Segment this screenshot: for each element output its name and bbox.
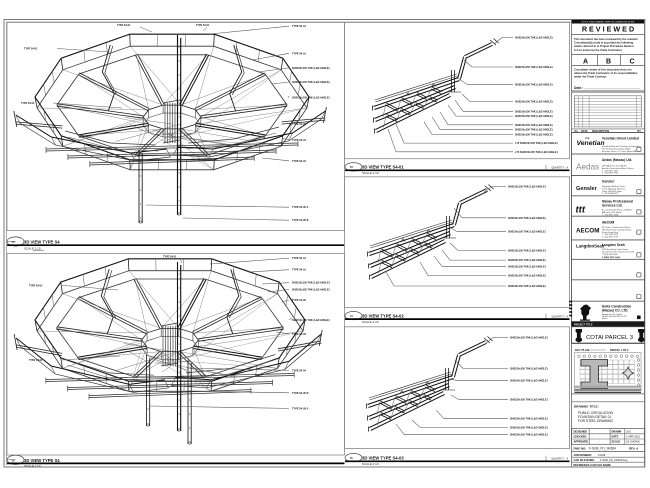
svg-text:Aedas (Macau) Ltd.: Aedas (Macau) Ltd. [602, 158, 632, 162]
svg-text:DO NOT SCALE DRAWING. VERIFY A: DO NOT SCALE DRAWING. VERIFY ALL DIMENSI… [581, 21, 635, 24]
svg-text:R E V I E W E D: R E V I E W E D [582, 25, 634, 34]
svg-text:QUANTITY : 4: QUANTITY : 4 [551, 314, 568, 318]
svg-text:04: 04 [350, 315, 353, 318]
svg-text:AECOM: AECOM [602, 221, 615, 225]
svg-text:SHS150x150 THK (L&D ANGLE): SHS150x150 THK (L&D ANGLE) [515, 83, 553, 86]
svg-text:Executive Offices - L2, Taipa,: Executive Offices - L2, Taipa, Macao SAR [602, 150, 638, 153]
svg-text:5.4 for action by the Trade Co: 5.4 for action by the Trade Contractor. [574, 48, 623, 52]
svg-text:JOB NUMBER:: JOB NUMBER: [574, 453, 592, 457]
svg-text:F + 852 3922 9797: F + 852 3922 9797 [602, 237, 618, 239]
svg-text:L75 SHS150x150 THK (L&D ANGLE): L75 SHS150x150 THK (L&D ANGLE) [515, 142, 558, 145]
svg-text:TYPE S4-01: TYPE S4-01 [117, 24, 131, 27]
svg-text:T + 81.3.6406.8771: T + 81.3.6406.8771 [602, 193, 618, 195]
svg-text:AECOM: AECOM [576, 228, 599, 235]
svg-text:DRAWING TITLE:: DRAWING TITLE: [574, 405, 599, 409]
svg-text:LKO: LKO [626, 430, 631, 433]
svg-text:SHS150x150 THK (L&D ANGLE): SHS150x150 THK (L&D ANGLE) [508, 275, 546, 278]
svg-text:F-SUB_FD_SK604.dwg: F-SUB_FD_SK604.dwg [600, 458, 628, 462]
svg-text:DESIGNED: DESIGNED [574, 429, 588, 433]
svg-text:CHECKED: CHECKED [574, 435, 587, 439]
svg-text:TYPE S4-04: TYPE S4-04 [292, 160, 307, 163]
svg-text:SHS150x150 THK (L&D ANGLE): SHS150x150 THK (L&D ANGLE) [292, 319, 330, 322]
svg-text:SHS150x150 THK (L&D ANGLE): SHS150x150 THK (L&D ANGLE) [508, 285, 546, 288]
svg-text:TYPE S4-01: TYPE S4-01 [292, 52, 307, 55]
svg-text:TYPE S4-02: TYPE S4-02 [292, 299, 307, 302]
svg-text:SHS150x150 THK (L&D ANGLE): SHS150x150 THK (L&D ANGLE) [292, 289, 330, 292]
svg-text:-: - [599, 441, 600, 444]
svg-text:SCALE 1:10: SCALE 1:10 [362, 462, 379, 466]
svg-text:SHS150x150 THK (L&D ANGLE): SHS150x150 THK (L&D ANGLE) [515, 66, 553, 69]
svg-text:DWG NO:: DWG NO: [574, 447, 587, 451]
svg-text:ttt: ttt [576, 205, 586, 216]
svg-text:Langdon Seah: Langdon Seah [602, 243, 625, 247]
svg-text:3D VIEW TYPE S4: 3D VIEW TYPE S4 [24, 240, 60, 245]
svg-text:Aedas: Aedas [576, 163, 599, 172]
svg-text:SHS150x150 THK (L&D ANGLE): SHS150x150 THK (L&D ANGLE) [292, 282, 330, 285]
svg-text:1-APR-2015: 1-APR-2015 [626, 436, 640, 439]
svg-text:SHS150x150 THK (L&D ANGLE): SHS150x150 THK (L&D ANGLE) [508, 217, 546, 220]
svg-text:SHS150x150 THK (L&D ANGLE): SHS150x150 THK (L&D ANGLE) [515, 128, 553, 131]
svg-text:TYPE S4-05 B: TYPE S4-05 B [292, 219, 309, 222]
svg-text:Venetian Orient Limited: Venetian Orient Limited [602, 137, 639, 141]
svg-text:SHS150x150 THK (L&D ANGLE): SHS150x150 THK (L&D ANGLE) [510, 426, 548, 429]
svg-text:L75 SHS150x150 THK (L&D ANGLE): L75 SHS150x150 THK (L&D ANGLE) [515, 151, 558, 154]
svg-text:DATE: DATE [612, 435, 619, 439]
svg-text:QUANTITY : 4: QUANTITY : 4 [551, 166, 568, 170]
svg-text:TYPE S4-02: TYPE S4-02 [29, 284, 43, 287]
svg-text:T (852) 2830 3500: T (852) 2830 3500 [602, 254, 618, 256]
svg-text:LangdonSeah: LangdonSeah [576, 244, 605, 249]
svg-text:TYPE S4-03: TYPE S4-03 [292, 123, 307, 126]
svg-text:TYPE S4-02: TYPE S4-02 [21, 102, 35, 105]
svg-text:F-SUB_FD_SK604: F-SUB_FD_SK604 [589, 447, 616, 451]
svg-text:-: - [599, 436, 600, 439]
svg-text:Macau: Macau [602, 318, 607, 320]
svg-text:THE: THE [585, 138, 590, 140]
svg-text:3D VIEW TYPE S4: 3D VIEW TYPE S4 [24, 458, 60, 463]
svg-text:APPROVED: APPROVED [574, 440, 589, 444]
svg-text:SHS150x150 THK (L&D ANGLE): SHS150x150 THK (L&D ANGLE) [510, 418, 548, 421]
svg-text:relieve the Trade Contractor o: relieve the Trade Contractor of its resp… [574, 71, 638, 75]
svg-text:SHS150x150 THK (L&D ANGLE): SHS150x150 THK (L&D ANGLE) [515, 110, 553, 113]
svg-text:3D VIEW TYPE S4-02: 3D VIEW TYPE S4-02 [362, 313, 404, 318]
svg-text:Consultant(s)(s) and is accord: Consultant(s)(s) and is accorded the fol… [574, 41, 633, 45]
svg-text:SHS150x150 THK (L&D ANGLE): SHS150x150 THK (L&D ANGLE) [515, 37, 553, 40]
svg-text:REV: A: REV: A [629, 447, 638, 451]
svg-text:TYPE S4-01: TYPE S4-01 [292, 25, 307, 28]
svg-text:AS SHOWN: AS SHOWN [626, 441, 640, 444]
svg-text:SHS150x150 THK (L&D ANGLE): SHS150x150 THK (L&D ANGLE) [515, 134, 553, 137]
svg-text:TYPE S4-05 A: TYPE S4-05 A [292, 407, 308, 410]
svg-text:SCALE 1:10: SCALE 1:10 [24, 464, 41, 468]
svg-text:SHS150x150 THK (L&D ANGLE): SHS150x150 THK (L&D ANGLE) [508, 259, 546, 262]
svg-text:SHS150x150 THK (L&D ANGLE): SHS150x150 THK (L&D ANGLE) [510, 380, 548, 383]
svg-text:PROJECT TITLE: PROJECT TITLE [574, 324, 593, 327]
svg-text:TYPE S4-04: TYPE S4-04 [292, 139, 307, 142]
svg-text:KEY PLAN: KEY PLAN [575, 348, 589, 352]
svg-text:TYPE S4-03: TYPE S4-03 [292, 333, 307, 336]
svg-text:(Macau) CO. LTD.: (Macau) CO. LTD. [602, 309, 628, 313]
svg-text:QUANTITY : 4: QUANTITY : 4 [551, 456, 568, 460]
svg-text:status referred to in Project: status referred to in Project Procedure … [574, 44, 634, 48]
svg-text:TYPE S4-01: TYPE S4-01 [292, 269, 307, 272]
svg-text:REFERENCE CAD FILE NAME:: REFERENCE CAD FILE NAME: [574, 463, 612, 467]
svg-text:3D VIEW TYPE S4-01: 3D VIEW TYPE S4-01 [362, 165, 404, 170]
svg-text:SHS150x150 THK (L&D ANGLE): SHS150x150 THK (L&D ANGLE) [292, 81, 330, 84]
svg-text:TYPE S4-01: TYPE S4-01 [292, 257, 307, 260]
svg-text:SHS150x150 THK (L&D ANGLE): SHS150x150 THK (L&D ANGLE) [508, 249, 546, 252]
svg-text:TYPE S4-04: TYPE S4-04 [292, 369, 307, 372]
svg-text:SHS150x150 THK (L&D ANGLE): SHS150x150 THK (L&D ANGLE) [508, 186, 546, 189]
svg-text:PARCEL 1 OF 3: PARCEL 1 OF 3 [610, 349, 629, 352]
svg-text:Date :: Date : [574, 86, 583, 90]
svg-text:under the Trade Contract.: under the Trade Contract. [574, 75, 607, 79]
svg-text:Gensler: Gensler [602, 180, 615, 184]
svg-text:03: 03 [350, 166, 353, 169]
svg-text:SHS150x150 THK (L&D ANGLE): SHS150x150 THK (L&D ANGLE) [515, 115, 553, 118]
svg-text:SHS150x150 THK (L&D ANGLE): SHS150x150 THK (L&D ANGLE) [508, 231, 546, 234]
svg-text:Venetian: Venetian [577, 140, 605, 147]
svg-text:SCALE 1:10: SCALE 1:10 [362, 320, 379, 324]
svg-text:SHS150x150 THK (L&D ANGLE): SHS150x150 THK (L&D ANGLE) [515, 124, 553, 127]
svg-text:SHS150x150 THK (L&D ANGLE): SHS150x150 THK (L&D ANGLE) [515, 101, 553, 104]
svg-text:SCALE 1:10: SCALE 1:10 [362, 171, 379, 175]
svg-text:SHS150x150 THK (L&D ANGLE): SHS150x150 THK (L&D ANGLE) [510, 368, 548, 371]
svg-text:05: 05 [350, 457, 353, 460]
svg-text:31328: 31328 [598, 453, 606, 457]
svg-text:SCALE: SCALE [612, 440, 621, 444]
svg-text:This document has been reviewe: This document has been reviewed by the r… [574, 37, 638, 41]
svg-text:Consultant review of this docu: Consultant review of this document does … [574, 68, 632, 72]
svg-text:TYPE S4-01: TYPE S4-01 [196, 24, 210, 27]
svg-text:A: A [583, 59, 588, 66]
svg-text:SHS150x150 THK (L&D ANGLE): SHS150x150 THK (L&D ANGLE) [292, 67, 330, 70]
svg-text:DRAWN: DRAWN [612, 429, 622, 433]
svg-text:SHS150x150 THK (L&D ANGLE): SHS150x150 THK (L&D ANGLE) [510, 433, 548, 436]
svg-text:CAD FILE NAME:: CAD FILE NAME: [574, 458, 595, 462]
svg-text:COTAI PARCEL 3: COTAI PARCEL 3 [586, 335, 634, 341]
svg-text:TYPE S4-05 B: TYPE S4-05 B [292, 392, 309, 395]
svg-text:FOR STEEL DRAWING: FOR STEEL DRAWING [578, 419, 613, 423]
svg-text:SCALE 1:10: SCALE 1:10 [24, 246, 41, 250]
svg-text:F (852) 2576 0416: F (852) 2576 0416 [602, 256, 621, 259]
svg-text:F + 853 2872 3942: F + 853 2872 3942 [602, 173, 618, 175]
svg-text:TYPE S4-05 A: TYPE S4-05 A [292, 206, 308, 209]
svg-text:SHS150x150 THK (L&D ANGLE): SHS150x150 THK (L&D ANGLE) [292, 97, 330, 100]
svg-text:TYPE S4-01: TYPE S4-01 [163, 256, 177, 259]
svg-text:SHS150x150 THK (L&D ANGLE): SHS150x150 THK (L&D ANGLE) [508, 265, 546, 268]
svg-text:C: C [629, 59, 634, 66]
svg-text:SHS150x150 THK (L&D ANGLE): SHS150x150 THK (L&D ANGLE) [510, 399, 548, 402]
svg-text:Gensler: Gensler [576, 186, 598, 192]
svg-text:TYPE S4-02: TYPE S4-02 [29, 359, 43, 362]
svg-text:SHS150x150 THK (L&D ANGLE): SHS150x150 THK (L&D ANGLE) [510, 336, 548, 339]
svg-text:Services Ltd.: Services Ltd. [602, 204, 623, 208]
svg-text:B: B [606, 59, 611, 66]
svg-text:TYPE S4-01: TYPE S4-01 [24, 48, 38, 51]
svg-text:3D VIEW TYPE S4-03: 3D VIEW TYPE S4-03 [362, 455, 404, 460]
